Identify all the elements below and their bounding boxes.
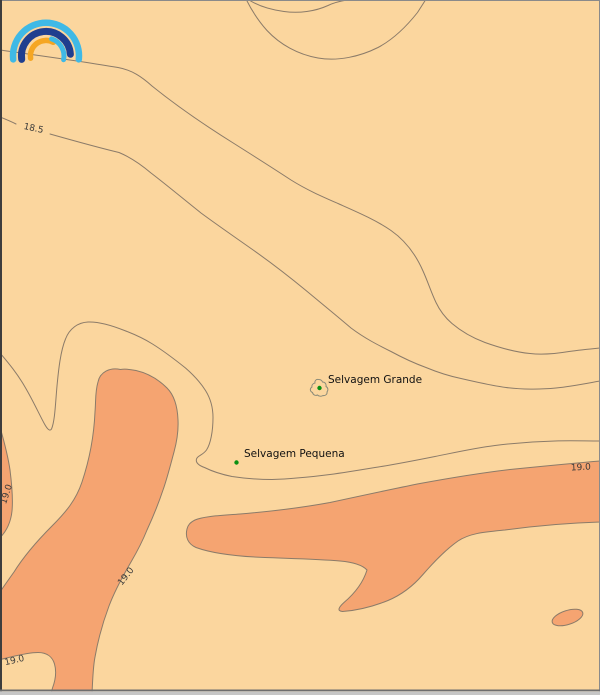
contour-map-window: 18.5 19.0 19.0 19.0 19.0 Selvagem Grande… (0, 0, 600, 695)
frame-bottom-margin (0, 691, 600, 695)
contour-label-19-right: 19.0 (571, 462, 592, 473)
selvagem-pequena-marker (234, 460, 238, 464)
selvagem-pequena-label: Selvagem Pequena (244, 448, 345, 460)
selvagem-grande-marker (317, 386, 321, 390)
frame-top (0, 0, 600, 1)
frame-left (0, 0, 2, 695)
map-canvas: 18.5 19.0 19.0 19.0 19.0 Selvagem Grande… (0, 0, 600, 695)
selvagem-grande-label: Selvagem Grande (328, 374, 422, 386)
frame-bottom-spine (0, 690, 600, 692)
